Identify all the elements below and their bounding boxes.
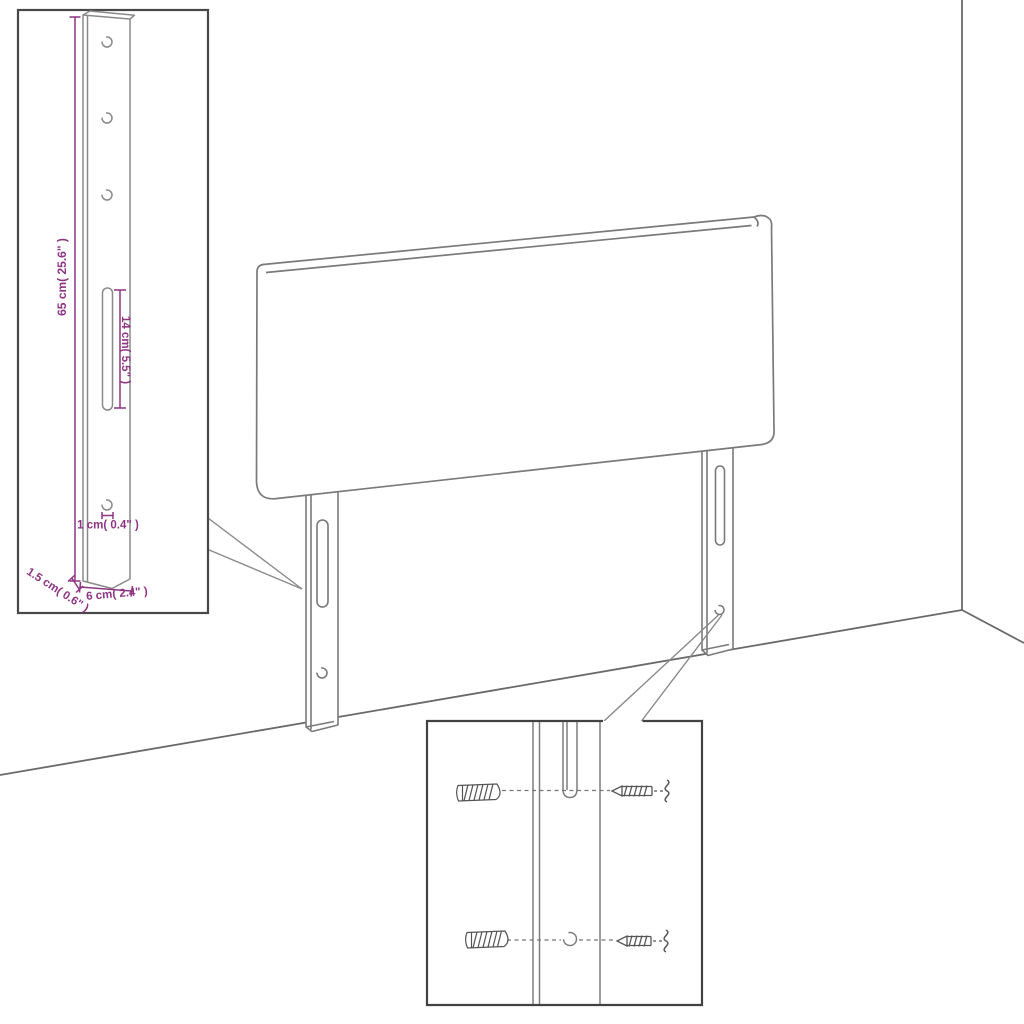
screw-hole-middle (102, 190, 112, 200)
right-mounting-leg (702, 444, 733, 656)
mounting-slot (103, 288, 113, 410)
left-mounting-leg (306, 482, 338, 732)
dimension-label-leg-height: 65 cm( 25.6" ) (56, 238, 68, 316)
floor-line-right (962, 610, 1024, 643)
inset-frame (427, 721, 702, 1005)
screw-hole-bottom (102, 500, 112, 510)
screw-hole-upper (102, 113, 112, 123)
screw-hole (715, 606, 724, 615)
mounting-slot (716, 466, 725, 545)
diagram-canvas: 65 cm( 25.6" ) 14 cm( 5.5" ) 1 cm( 0.4" … (0, 0, 1024, 1024)
dimension-label-hole-diameter: 1 cm( 0.4" ) (77, 520, 139, 532)
headboard-panel (257, 215, 775, 498)
leg-drawing (83, 11, 135, 589)
dimension-label-slot-length: 14 cm( 5.5" ) (118, 316, 130, 384)
screw-hole-top (102, 37, 112, 47)
mounting-detail-inset (427, 721, 702, 1005)
mounting-slot (317, 520, 328, 607)
callout-lines-left (208, 518, 302, 589)
screw-hole (317, 668, 327, 678)
diagram-linework (0, 0, 1024, 1024)
